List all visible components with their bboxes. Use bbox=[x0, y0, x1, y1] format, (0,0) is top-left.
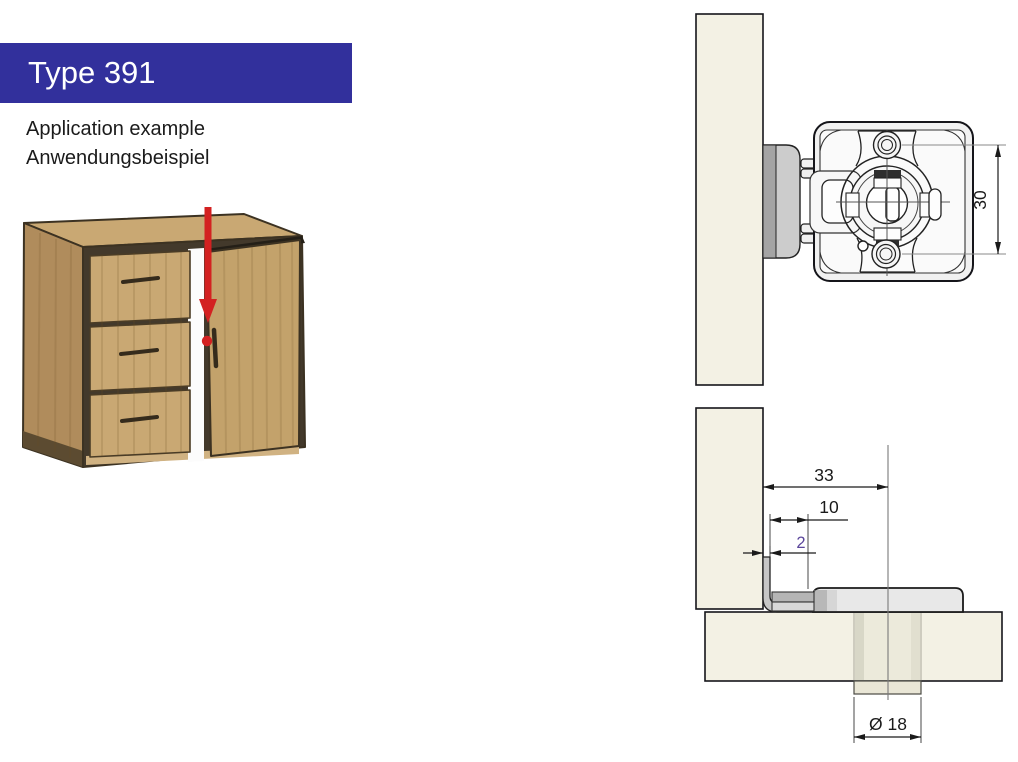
dim-latch-projection: 10 bbox=[770, 497, 848, 589]
mounting-screw-top bbox=[874, 132, 901, 159]
side-button bbox=[929, 189, 941, 220]
keyway-slot bbox=[886, 187, 899, 221]
lock-front-view: 30 bbox=[696, 14, 1006, 385]
dim-total-depth: 33 bbox=[763, 465, 888, 490]
dim-label-33: 33 bbox=[814, 465, 833, 485]
dim-label-2: 2 bbox=[796, 534, 805, 552]
lock-section-view: 33 10 2 bbox=[696, 408, 1002, 743]
cabinet-illustration bbox=[23, 207, 305, 467]
door-panel-section bbox=[696, 408, 763, 609]
dim-label-10: 10 bbox=[819, 497, 839, 517]
door-handle bbox=[214, 330, 216, 366]
lock-position-dot bbox=[202, 336, 212, 346]
dim-label-diameter: Ø 18 bbox=[869, 714, 907, 734]
technical-drawings: 30 bbox=[0, 0, 1018, 762]
dim-label-30: 30 bbox=[970, 190, 990, 210]
pilot-hole bbox=[858, 241, 868, 251]
latch-tongue bbox=[772, 592, 814, 602]
dim-hole-diameter: Ø 18 bbox=[854, 697, 921, 743]
mounting-screw-bottom bbox=[872, 240, 900, 268]
catalog-page: Type 391 Application example Anwendungsb… bbox=[0, 0, 1018, 762]
door-panel-front bbox=[696, 14, 763, 385]
